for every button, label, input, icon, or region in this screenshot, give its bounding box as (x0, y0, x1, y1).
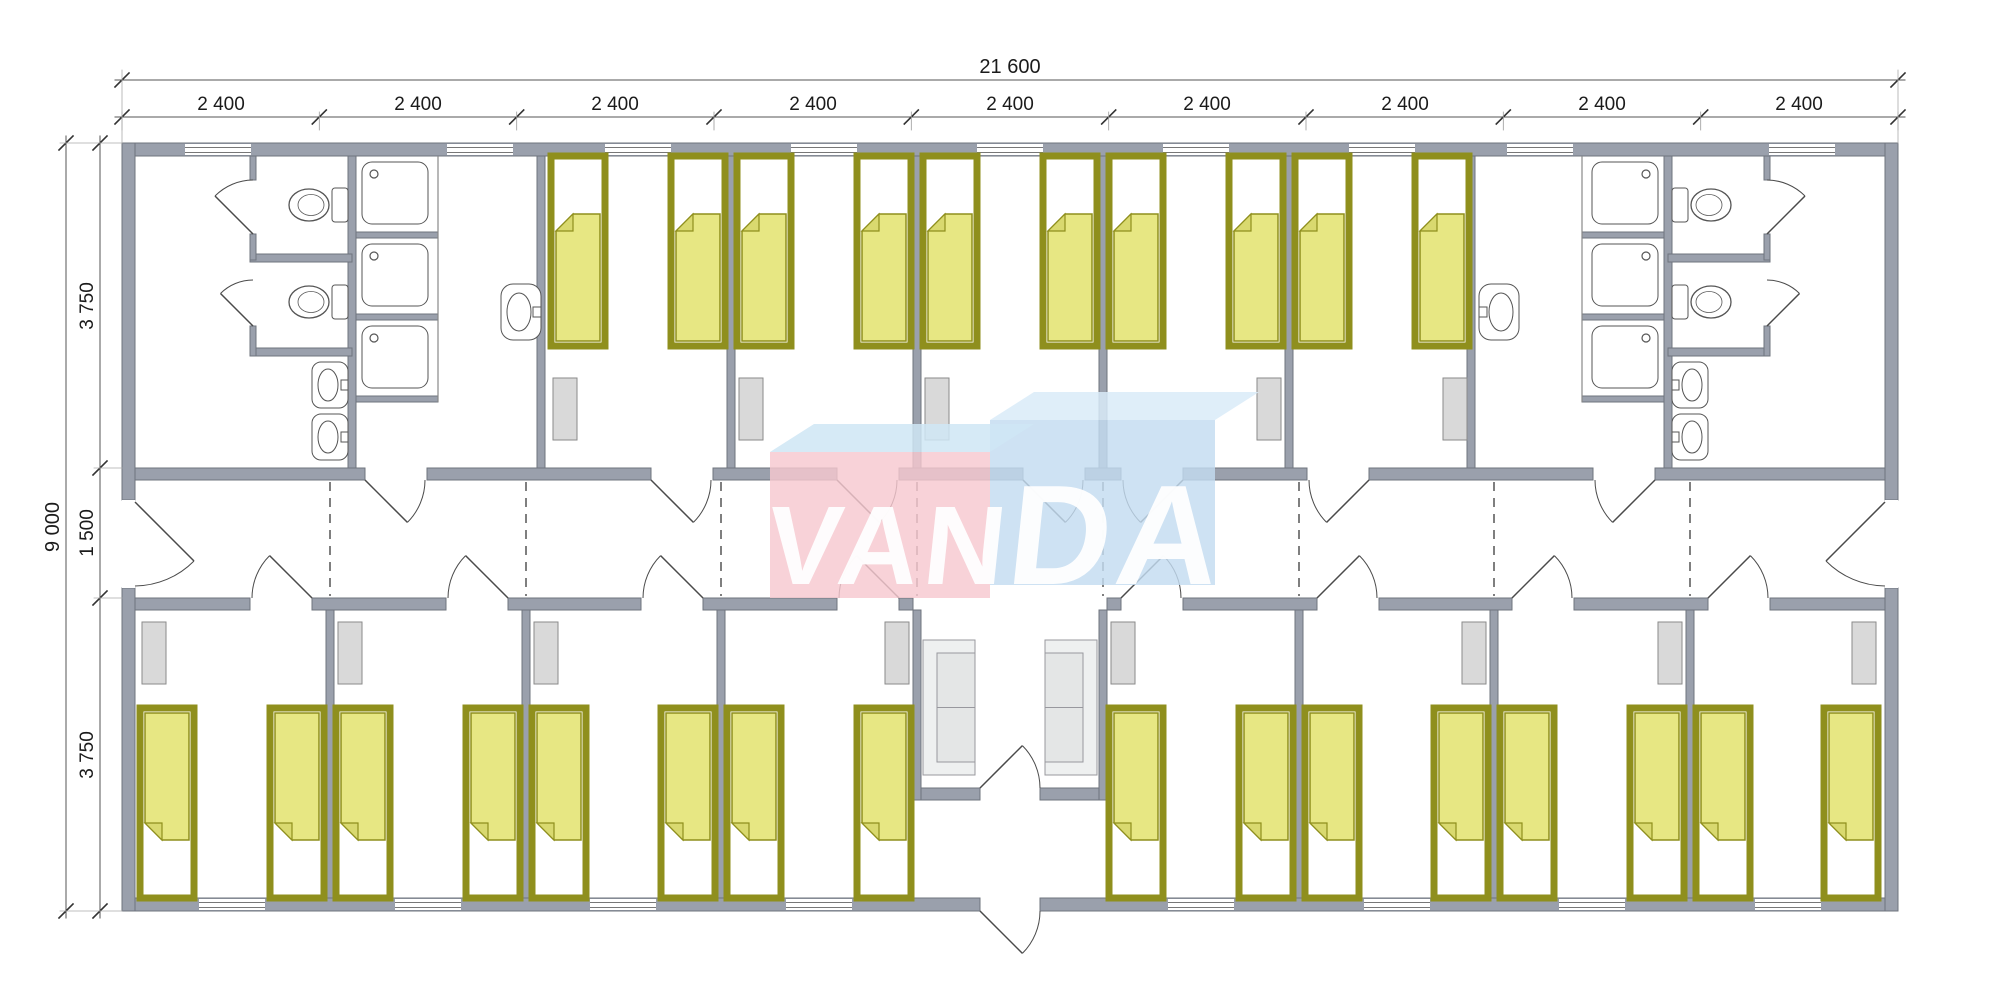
door-leaf (1613, 480, 1655, 522)
window (590, 899, 656, 910)
door-leaf (980, 911, 1022, 953)
toilet-tank (332, 285, 348, 319)
dim-module-label: 2 400 (789, 94, 837, 115)
wardrobe (1658, 622, 1682, 684)
door-swing-arc (252, 556, 270, 598)
corridor-wall-bottom (508, 598, 641, 610)
bed-blanket (742, 214, 786, 341)
bed-blanket (145, 713, 189, 840)
window (1507, 144, 1573, 155)
shower-icon (362, 162, 428, 224)
toilet-bowl (289, 286, 329, 318)
bed-top-row (1415, 156, 1469, 346)
bed-bottom-row (1824, 708, 1878, 898)
door-leaf (1327, 480, 1369, 522)
wc-stall-wall (250, 156, 256, 180)
wc-stall-wall (250, 326, 256, 356)
bed-blanket (1300, 214, 1344, 341)
vestibule-inner-wall (1040, 788, 1099, 800)
door-leaf (1767, 196, 1805, 234)
window (1559, 899, 1625, 910)
door-leaf (221, 294, 254, 327)
window (447, 144, 513, 155)
sink-faucet (533, 307, 541, 317)
bed-bottom-row (1500, 708, 1554, 898)
bed-blanket (732, 713, 776, 840)
shower-icon (1592, 244, 1658, 306)
floor-plan: VAN DA 21 600 2 400 2 400 2 400 2 400 2 … (0, 0, 2000, 999)
dim-module-label: 2 400 (394, 94, 442, 115)
dim-vertical-label: 3 750 (77, 731, 98, 779)
bed-top-row (1109, 156, 1163, 346)
bed-blanket (1048, 214, 1092, 341)
door-leaf (661, 556, 703, 598)
door-swing-arc (1767, 180, 1805, 196)
dim-vertical-label: 1 500 (77, 509, 98, 557)
door-swing-arc (1022, 746, 1040, 788)
sink-faucet (1479, 307, 1487, 317)
wc-stall-wall (1764, 234, 1770, 260)
window (1349, 144, 1415, 155)
bed-blanket (537, 713, 581, 840)
shower-icon (1592, 162, 1658, 224)
shower-icon (362, 326, 428, 388)
door-swing-arc (1750, 556, 1768, 598)
wc-stall-wall (250, 348, 352, 356)
washroom-wall (1664, 156, 1672, 468)
door-swing-arc (1767, 280, 1800, 294)
bed-top-row (551, 156, 605, 346)
door-swing-arc (1595, 480, 1613, 522)
bed-blanket (928, 214, 972, 341)
basin-faucet (341, 432, 348, 442)
door-leaf (1512, 556, 1554, 598)
bed-blanket (1829, 713, 1873, 840)
wc-stall-wall (1668, 254, 1770, 262)
bed-top-row (857, 156, 911, 346)
toilet-icon (1672, 285, 1731, 319)
bed-bottom-row (857, 708, 911, 898)
dim-module-label: 2 400 (1381, 94, 1429, 115)
toilet-icon (289, 285, 348, 319)
toilet-bowl (289, 189, 329, 221)
toilet-tank (1672, 188, 1688, 222)
door-leaf (1317, 556, 1359, 598)
wc-stall-wall (250, 234, 256, 260)
shower-divider-wall (1582, 314, 1664, 320)
corridor-wall-bottom (1574, 598, 1708, 610)
door-leaf (135, 502, 194, 561)
sink-icon (1479, 284, 1519, 340)
door-swing-arc (448, 556, 466, 598)
window (791, 144, 857, 155)
wardrobe (142, 622, 166, 684)
door-leaf (270, 556, 312, 598)
wardrobe (739, 378, 763, 440)
washroom-fixtures (215, 156, 541, 468)
wardrobe (1443, 378, 1467, 440)
corridor-wall-top (1655, 468, 1885, 480)
bed-top-row (1295, 156, 1349, 346)
door-swing-arc (693, 480, 711, 522)
bed-top-row (1229, 156, 1283, 346)
dim-total-height-label: 9 000 (42, 502, 64, 552)
corridor-wall-top (135, 468, 365, 480)
basin-faucet (1672, 432, 1679, 442)
bed-bottom-row (661, 708, 715, 898)
door-swing-arc (1826, 561, 1885, 586)
toilet-icon (289, 188, 348, 222)
door-swing-arc (643, 556, 661, 598)
bed-blanket (1310, 713, 1354, 840)
dim-module-label: 2 400 (1775, 94, 1823, 115)
shower-divider-wall (356, 232, 438, 238)
bed-blanket (1439, 713, 1483, 840)
bed-bottom-row (336, 708, 390, 898)
watermark-blue-top-face (990, 392, 1259, 420)
washroom-right (1479, 156, 1805, 468)
dim-vertical-label: 3 750 (77, 282, 98, 330)
window (1769, 144, 1835, 155)
shower-divider-wall (1582, 232, 1664, 238)
corridor-wall-bottom (312, 598, 446, 610)
dim-total-width-label: 21 600 (979, 56, 1040, 78)
door-swing-arc (221, 280, 254, 294)
bed-blanket (556, 214, 600, 341)
door-leaf (215, 196, 253, 234)
dim-module-label: 2 400 (591, 94, 639, 115)
door-swing-arc (1022, 911, 1040, 953)
window (1364, 899, 1430, 910)
window (977, 144, 1043, 155)
bed-top-row (671, 156, 725, 346)
bed-top-row (1043, 156, 1097, 346)
sofa (1045, 640, 1097, 775)
bed-bottom-row (466, 708, 520, 898)
toilet-icon (1672, 188, 1731, 222)
window (185, 144, 251, 155)
sofas (923, 640, 1097, 775)
wash-basin-icon (1672, 414, 1708, 460)
door-swing-arc (1309, 480, 1327, 522)
exterior-wall-left (122, 588, 135, 911)
watermark-pink-top-face (770, 424, 1034, 452)
dim-module-label: 2 400 (986, 94, 1034, 115)
wardrobe (1462, 622, 1486, 684)
bed-bottom-row (1696, 708, 1750, 898)
bed-blanket (1635, 713, 1679, 840)
wardrobe (1852, 622, 1876, 684)
washroom-fixtures (1479, 156, 1805, 468)
exterior-wall-right (1885, 588, 1898, 911)
wardrobe (338, 622, 362, 684)
window (1755, 899, 1821, 910)
door-swing-arc (1359, 556, 1377, 598)
toilet-tank (332, 188, 348, 222)
door-leaf (1767, 294, 1800, 327)
corridor-wall-top (427, 468, 651, 480)
shower-icon (362, 244, 428, 306)
bed-blanket (862, 713, 906, 840)
bed-bottom-row (1434, 708, 1488, 898)
watermark-text-da: DA (1001, 456, 1233, 615)
door-leaf (1826, 502, 1885, 561)
bed-bottom-row (270, 708, 324, 898)
basin-faucet (1672, 380, 1679, 390)
washroom-wall (348, 156, 356, 468)
door-leaf (365, 480, 407, 522)
bed-bottom-row (727, 708, 781, 898)
window (786, 899, 852, 910)
corridor-wall-top (1369, 468, 1593, 480)
floor-plan-canvas: VAN DA 21 600 2 400 2 400 2 400 2 400 2 … (0, 0, 2000, 999)
wardrobe (885, 622, 909, 684)
bed-bottom-row (1239, 708, 1293, 898)
bed-blanket (676, 214, 720, 341)
wash-basin-icon (312, 362, 348, 408)
corridor-wall-bottom (135, 598, 250, 610)
basin-faucet (341, 380, 348, 390)
shower-divider-wall (1582, 396, 1664, 402)
sofa (923, 640, 975, 775)
bed-top-row (923, 156, 977, 346)
bed-bottom-row (1630, 708, 1684, 898)
shower-icon (1592, 326, 1658, 388)
door-swing-arc (1554, 556, 1572, 598)
dim-module-label: 2 400 (197, 94, 245, 115)
corridor-wall-bottom (1770, 598, 1885, 610)
exterior-wall-left (122, 143, 135, 500)
wardrobe (534, 622, 558, 684)
bed-blanket (1505, 713, 1549, 840)
shower-divider-wall (356, 314, 438, 320)
bed-blanket (471, 713, 515, 840)
washroom-left (215, 156, 541, 468)
wc-stall-wall (250, 254, 352, 262)
door-opening (122, 500, 135, 588)
door-swing-arc (135, 561, 194, 586)
bed-blanket (1420, 214, 1464, 341)
toilet-tank (1672, 285, 1688, 319)
dim-module-label: 2 400 (1578, 94, 1626, 115)
door-leaf (1708, 556, 1750, 598)
door-leaf (651, 480, 693, 522)
sink-icon (501, 284, 541, 340)
bed-blanket (862, 214, 906, 341)
wardrobe (553, 378, 577, 440)
bed-blanket (275, 713, 319, 840)
door-opening (1885, 500, 1898, 588)
bed-bottom-row (1305, 708, 1359, 898)
door-swing-arc (215, 180, 253, 196)
bed-bottom-row (1109, 708, 1163, 898)
bed-blanket (1244, 713, 1288, 840)
bed-blanket (1234, 214, 1278, 341)
bed-blanket (1114, 214, 1158, 341)
bed-blanket (1114, 713, 1158, 840)
bed-bottom-row (140, 708, 194, 898)
toilet-bowl (1691, 286, 1731, 318)
bed-bottom-row (532, 708, 586, 898)
window (1168, 899, 1234, 910)
wardrobe (1111, 622, 1135, 684)
exterior-wall-right (1885, 143, 1898, 500)
toilet-bowl (1691, 189, 1731, 221)
window (395, 899, 461, 910)
window (605, 144, 671, 155)
dim-module-label: 2 400 (1183, 94, 1231, 115)
watermark-text-van: VAN (761, 482, 1017, 608)
bed-blanket (666, 713, 710, 840)
wash-basin-icon (1672, 362, 1708, 408)
door-leaf (980, 746, 1022, 788)
shower-divider-wall (356, 396, 438, 402)
wardrobe (1257, 378, 1281, 440)
wc-stall-wall (1764, 156, 1770, 180)
vanda-watermark: VAN DA (761, 392, 1259, 615)
wash-basin-icon (312, 414, 348, 460)
corridor-wall-bottom (1379, 598, 1512, 610)
bed-blanket (341, 713, 385, 840)
vestibule-inner-wall (921, 788, 980, 800)
wc-stall-wall (1668, 348, 1770, 356)
bed-blanket (1701, 713, 1745, 840)
window (199, 899, 265, 910)
door-leaf (466, 556, 508, 598)
bed-top-row (737, 156, 791, 346)
window (1163, 144, 1229, 155)
door-swing-arc (407, 480, 425, 522)
wc-stall-wall (1764, 326, 1770, 356)
